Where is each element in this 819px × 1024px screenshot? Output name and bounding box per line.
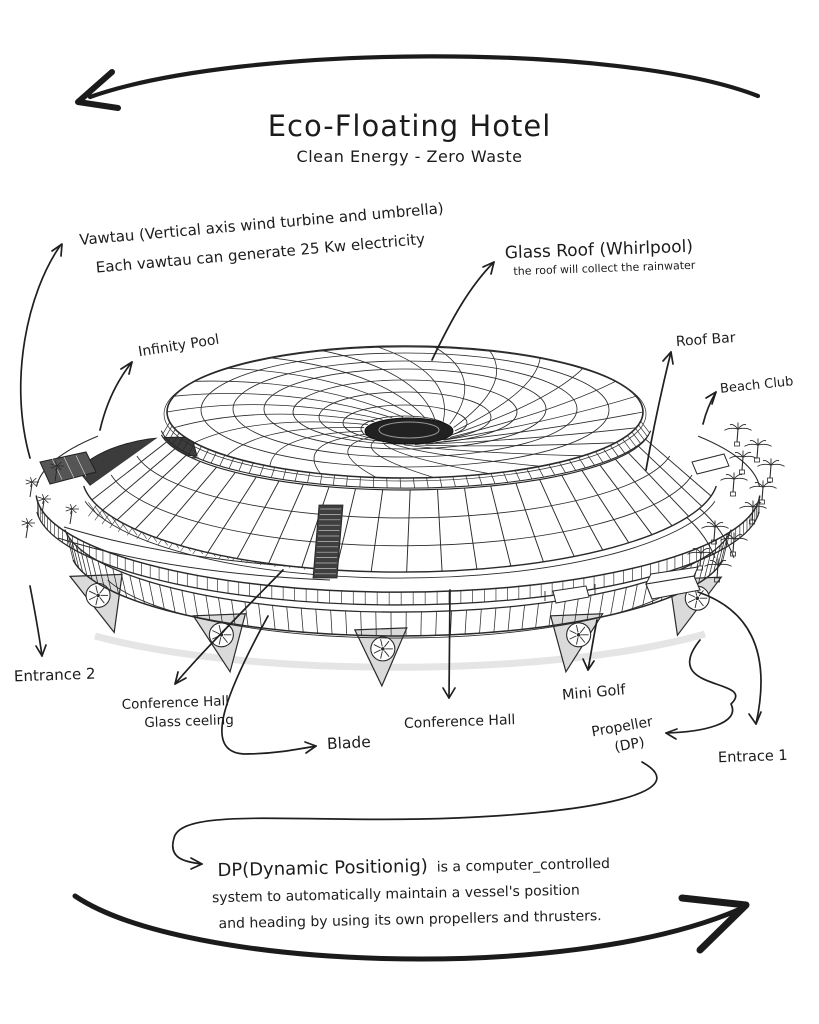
annotation-glass-roof: Glass Roof (Whirlpool) the roof will col… [504, 237, 695, 280]
annotation-blade: Blade [327, 733, 372, 755]
dp-note-line1-rest: is a computer_controlled [437, 856, 610, 876]
arrow-glass-roof [432, 262, 494, 360]
arrow-entrance-1 [698, 592, 761, 724]
annotation-conference-hall-glass: Conference Hall Glass ceeling [121, 692, 234, 734]
page-title: Eco-Floating Hotel [0, 108, 819, 144]
arrow-infinity-pool [100, 362, 132, 430]
hotel-drawing [22, 346, 785, 686]
arrow-conference-hall [449, 590, 450, 698]
conference-glass-line2: Glass ceeling [144, 711, 234, 733]
arrow-dp-squiggle [173, 762, 657, 864]
sketch-page: Eco-Floating Hotel Clean Energy - Zero W… [0, 0, 819, 1024]
arrow-vawtau [21, 246, 60, 458]
annotation-entrance-1: Entrace 1 [718, 747, 788, 768]
annotation-entrance-2: Entrance 2 [14, 665, 96, 687]
dp-note-intro: DP(Dynamic Positionig) [217, 856, 428, 881]
arrow-propeller [666, 640, 736, 733]
title-block: Eco-Floating Hotel Clean Energy - Zero W… [0, 108, 819, 167]
annotation-dp-note: DP(Dynamic Positionig)is a computer_cont… [217, 850, 611, 937]
top-swoosh-arrow [90, 56, 758, 97]
page-subtitle: Clean Energy - Zero Waste [0, 147, 819, 167]
